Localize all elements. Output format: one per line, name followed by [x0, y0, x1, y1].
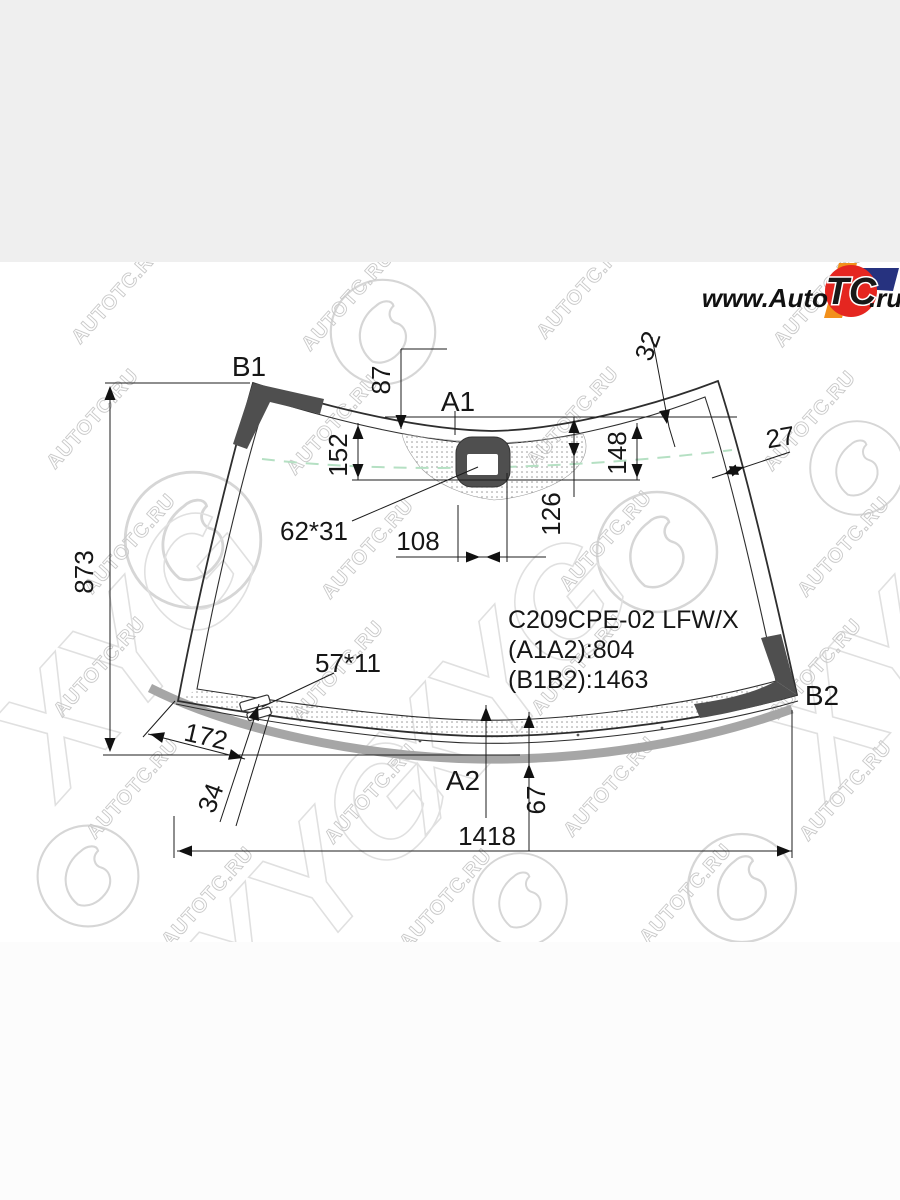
top-gray-band [0, 0, 900, 262]
dim-87: 87 [366, 366, 396, 395]
logo-www-auto: www.Auto [702, 283, 828, 313]
dim-62x31: 62*31 [280, 516, 348, 546]
bottom-background [0, 942, 900, 1200]
dim-148: 148 [602, 431, 632, 474]
dim-57x11: 57*11 [315, 648, 381, 678]
part-spec-b1b2: (B1B2):1463 [508, 666, 648, 694]
point-label-b2: B2 [805, 680, 839, 711]
dim-67: 67 [521, 786, 551, 815]
part-spec-a1a2: (A1A2):804 [508, 636, 635, 664]
dim-27: 27 [764, 420, 798, 455]
windshield-diagram-page: XYG XYG XYG XYG AUTOTC.RU AUTOTC.RU AUTO… [0, 0, 900, 1200]
point-label-b1: B1 [232, 351, 266, 382]
part-code: C209CPE-02 LFW/X [508, 606, 739, 634]
point-label-a2: A2 [446, 765, 480, 796]
dim-108: 108 [396, 526, 439, 556]
dim-1418: 1418 [458, 821, 516, 851]
point-label-a1: A1 [441, 386, 475, 417]
ref-dot [577, 734, 580, 737]
logo-ru: .ru [869, 283, 900, 313]
ref-dot [419, 740, 422, 743]
dim-873: 873 [69, 550, 99, 593]
sensor-window [467, 454, 498, 475]
dim-152: 152 [323, 433, 353, 476]
dim-126: 126 [536, 492, 566, 535]
ref-dot [661, 727, 664, 730]
